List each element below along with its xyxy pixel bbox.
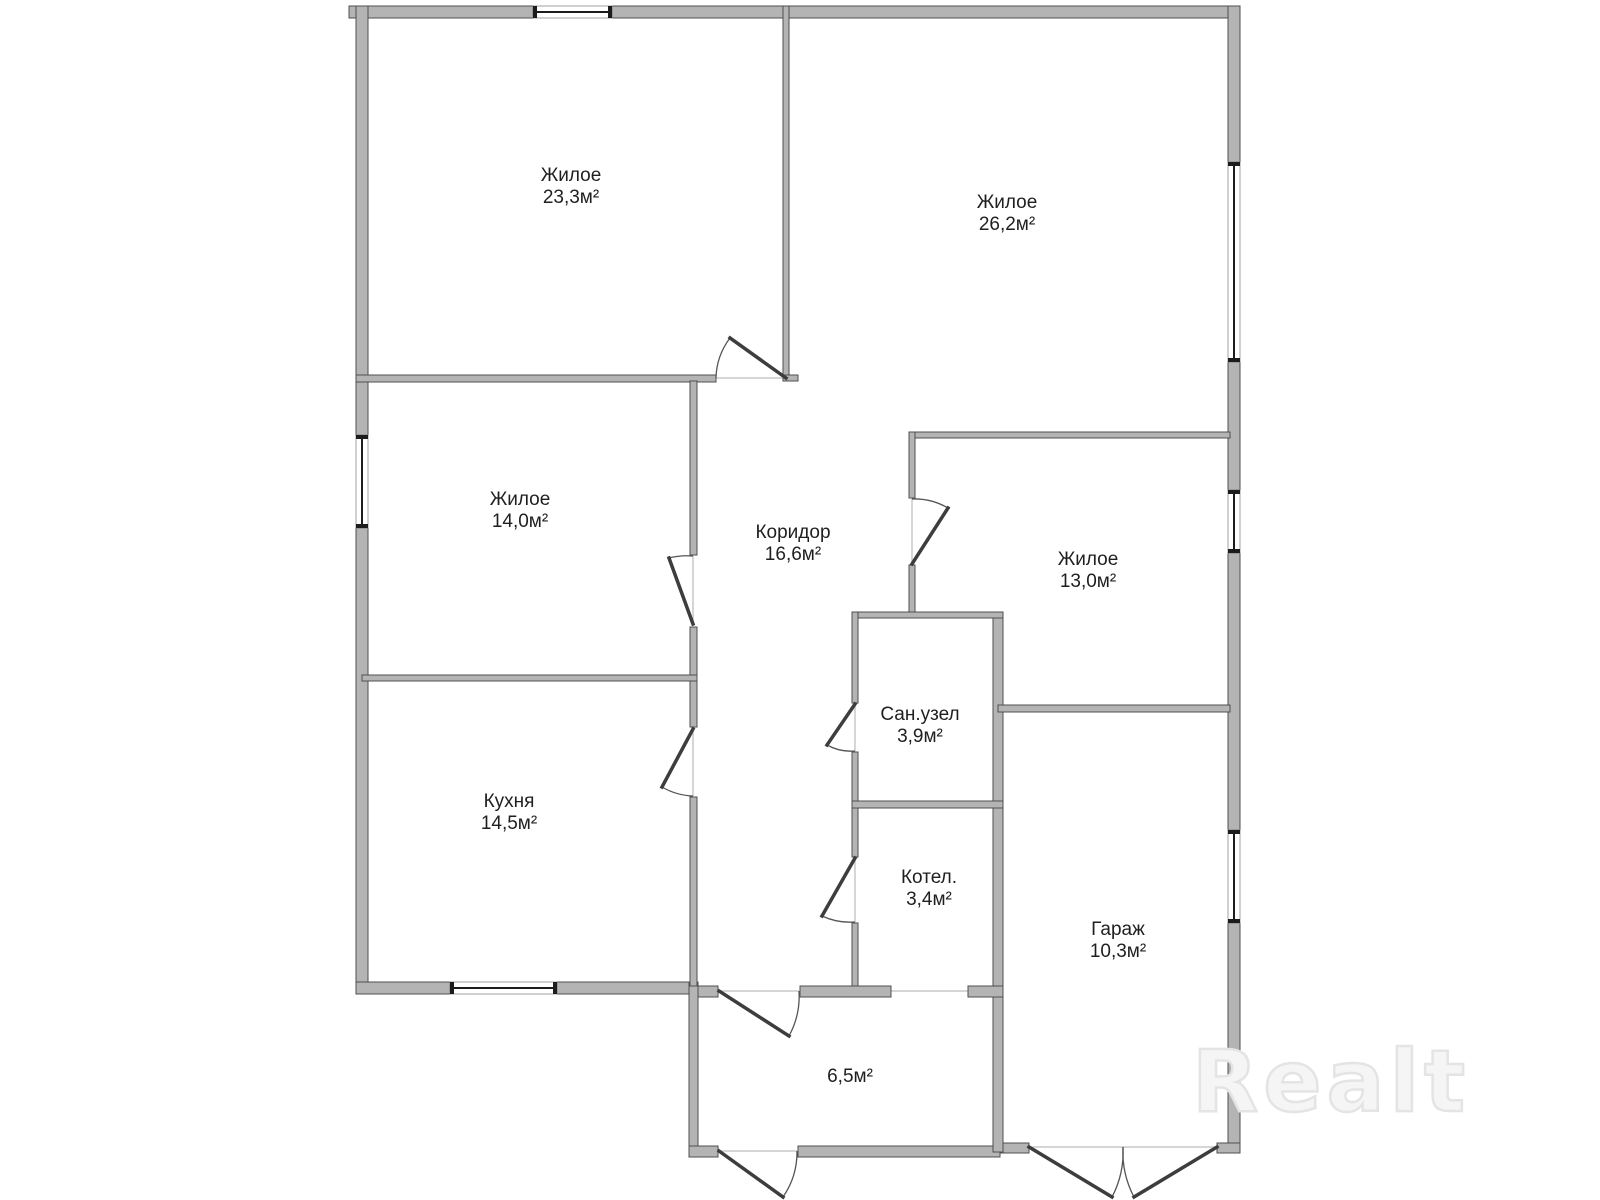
room-name: Котел.	[901, 867, 957, 889]
room-name: Жилое	[977, 192, 1038, 214]
room-area: 26,2м²	[977, 214, 1038, 236]
room-area: 3,9м²	[880, 726, 959, 748]
floorplan-page: Жилое 23,3м² Жилое 26,2м² Жилое 14,0м² К…	[0, 0, 1600, 1200]
room-area: 10,3м²	[1090, 941, 1146, 963]
room-name: Жилое	[541, 165, 602, 187]
room-name: Жилое	[1058, 549, 1119, 571]
room-name: Сан.узел	[880, 704, 959, 726]
room-name: Кухня	[481, 791, 537, 813]
room-name: Гараж	[1090, 919, 1146, 941]
room-label-garage: Гараж 10,3м²	[1090, 919, 1146, 963]
room-area: 3,4м²	[901, 889, 957, 911]
room-label-corridor: Коридор 16,6м²	[755, 522, 830, 566]
room-label-kitchen: Кухня 14,5м²	[481, 791, 537, 835]
room-label-living-2: Жилое 26,2м²	[977, 192, 1038, 236]
room-name: Коридор	[755, 522, 830, 544]
room-label-boiler: Котел. 3,4м²	[901, 867, 957, 911]
windows-layer	[356, 6, 1240, 994]
room-area: 14,5м²	[481, 813, 537, 835]
room-area: 14,0м²	[490, 511, 551, 533]
room-label-living-1: Жилое 23,3м²	[541, 165, 602, 209]
doors-layer	[662, 338, 1217, 1197]
thresholds-layer	[693, 378, 1217, 1151]
realt-watermark: Realt	[1192, 1032, 1592, 1132]
room-area: 23,3м²	[541, 187, 602, 209]
room-area: 6,5м²	[827, 1066, 873, 1088]
room-label-living-4: Жилое 13,0м²	[1058, 549, 1119, 593]
room-name: Жилое	[490, 489, 551, 511]
floorplan-drawing	[0, 0, 1600, 1200]
room-label-living-3: Жилое 14,0м²	[490, 489, 551, 533]
room-area: 13,0м²	[1058, 571, 1119, 593]
room-label-entry: 6,5м²	[827, 1066, 873, 1088]
room-label-bathroom: Сан.узел 3,9м²	[880, 704, 959, 748]
room-area: 16,6м²	[755, 544, 830, 566]
